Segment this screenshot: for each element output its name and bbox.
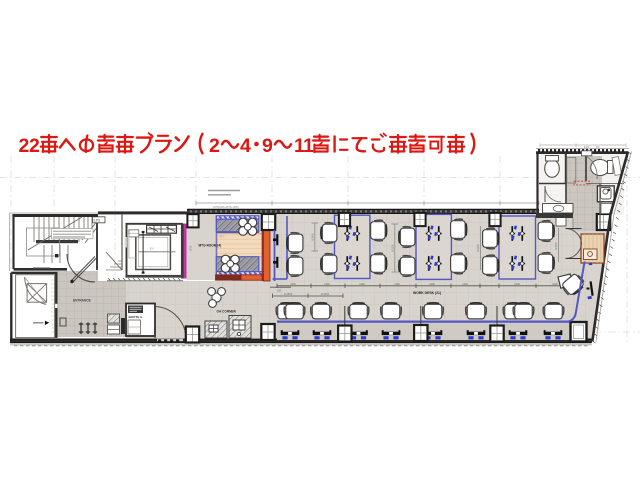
svg-text:3975(1050+1575+1350): 3975(1050+1575+1350)	[213, 206, 239, 209]
svg-text:1400: 1400	[359, 283, 365, 286]
svg-text:EPS: EPS	[584, 145, 589, 149]
svg-text:4: 4	[240, 135, 251, 157]
svg-text:BOOTH A: BOOTH A	[129, 315, 144, 319]
svg-text:W1400: W1400	[311, 232, 314, 241]
svg-text:EV: EV	[150, 246, 154, 250]
svg-text:1400: 1400	[324, 283, 330, 286]
svg-text:WORK DESK (21): WORK DESK (21)	[413, 291, 441, 295]
svg-text:1200: 1200	[462, 283, 468, 286]
svg-text:MTG: MTG	[219, 236, 224, 239]
svg-text:2: 2	[19, 135, 30, 157]
svg-text:1400: 1400	[514, 283, 520, 286]
svg-text:W1200: W1200	[477, 243, 480, 252]
svg-text:1400: 1400	[429, 283, 435, 286]
svg-text:2x1500: 2x1500	[284, 293, 293, 296]
svg-text:1500: 1500	[552, 283, 558, 286]
svg-text:W1200: W1200	[555, 241, 558, 250]
svg-text:PS: PS	[596, 145, 600, 149]
svg-text:1: 1	[303, 135, 314, 157]
svg-text:EPS: EPS	[94, 218, 102, 222]
svg-text:OA CORNER: OA CORNER	[217, 310, 237, 314]
svg-text:1500: 1500	[290, 283, 296, 286]
svg-text:W1200: W1200	[391, 243, 394, 252]
svg-text:ENTRANCE: ENTRANCE	[73, 298, 91, 302]
svg-text:150: 150	[277, 290, 282, 293]
svg-text:9: 9	[262, 135, 273, 157]
svg-text:2: 2	[29, 135, 40, 157]
svg-text:2: 2	[209, 135, 220, 157]
svg-text:MTG ROOM (4): MTG ROOM (4)	[199, 244, 222, 248]
svg-text:W15: W15	[189, 245, 193, 251]
svg-text:2x1500: 2x1500	[321, 293, 330, 296]
svg-text:1100: 1100	[394, 283, 400, 286]
